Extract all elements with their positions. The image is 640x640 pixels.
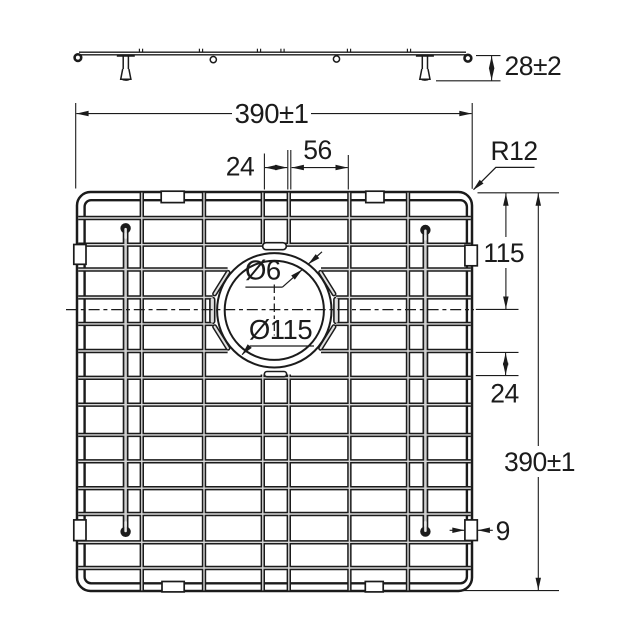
- svg-text:115: 115: [483, 238, 524, 268]
- svg-text:56: 56: [303, 135, 331, 165]
- svg-text:24: 24: [490, 379, 518, 409]
- svg-text:28±2: 28±2: [505, 51, 562, 81]
- svg-text:24: 24: [226, 152, 254, 182]
- svg-text:390±1: 390±1: [235, 98, 309, 129]
- svg-text:Ø6: Ø6: [245, 255, 281, 286]
- svg-text:Ø115: Ø115: [249, 314, 312, 345]
- svg-text:9: 9: [496, 516, 510, 546]
- svg-text:390±1: 390±1: [504, 447, 575, 477]
- svg-text:R12: R12: [490, 136, 537, 166]
